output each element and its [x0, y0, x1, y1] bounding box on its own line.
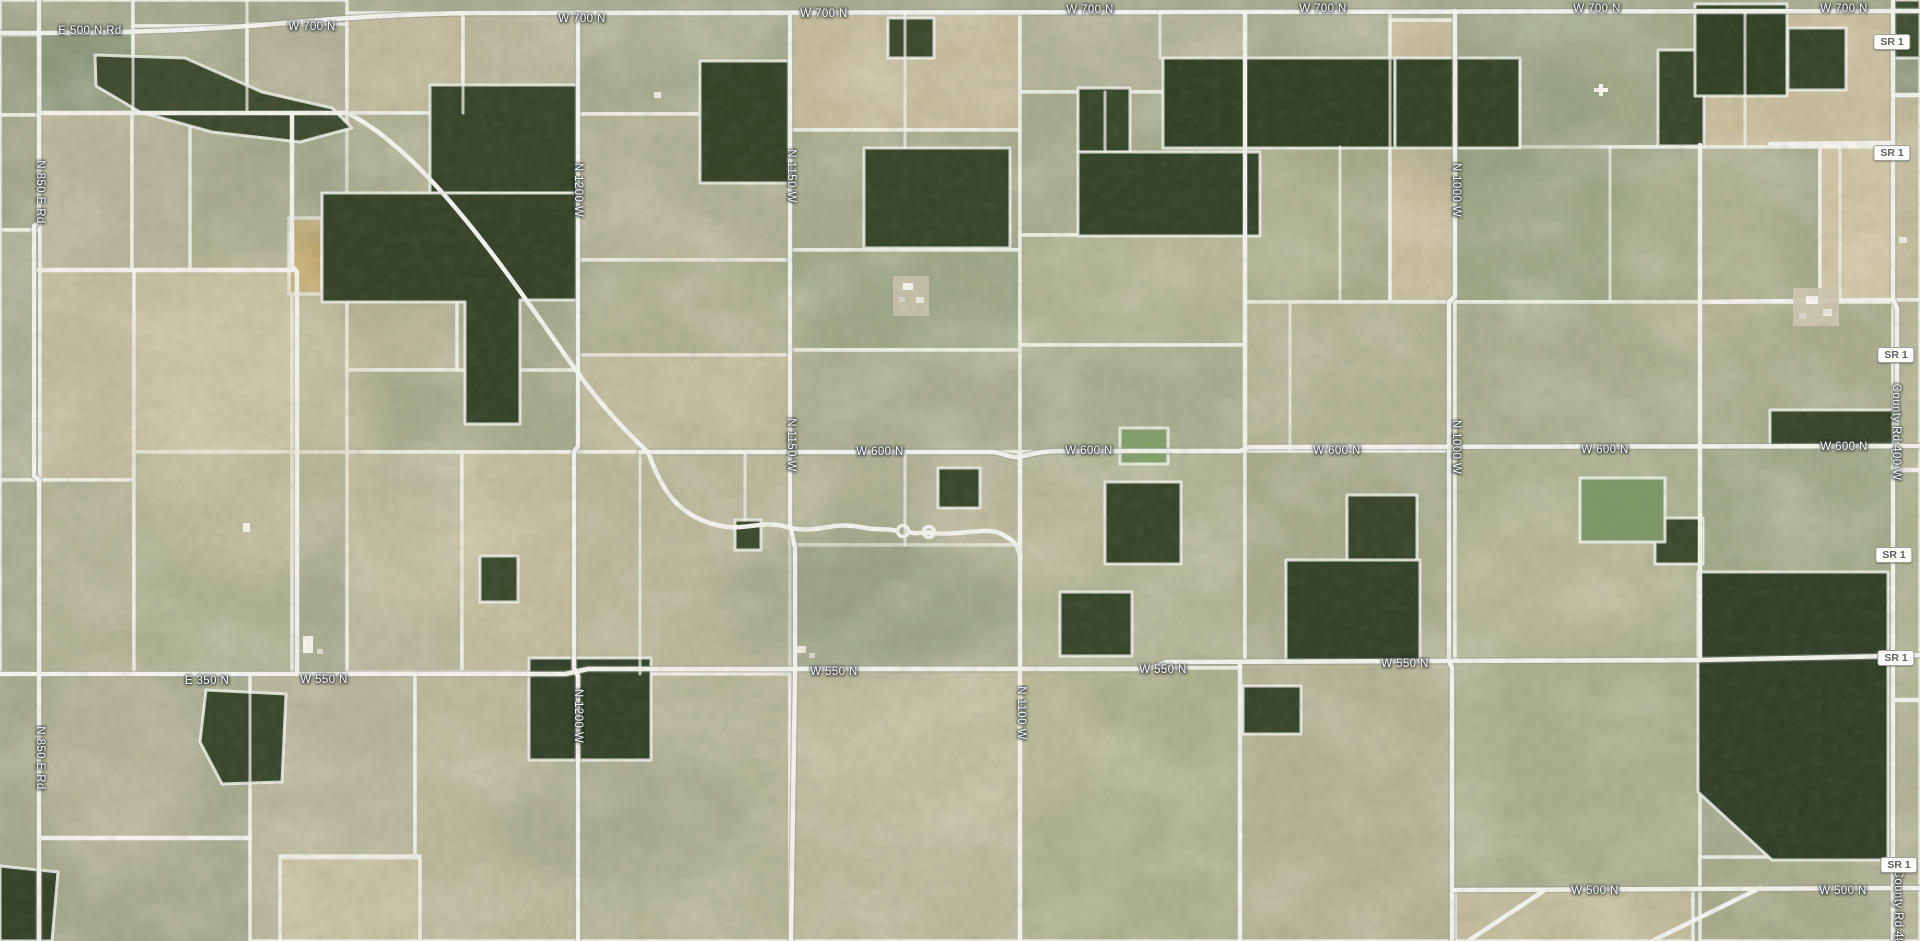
texture-overlay: [0, 0, 1920, 941]
satellite-map[interactable]: E 500 N RdW 700 NW 700 NW 700 NW 700 NW …: [0, 0, 1920, 941]
satellite-imagery: [0, 0, 1920, 941]
